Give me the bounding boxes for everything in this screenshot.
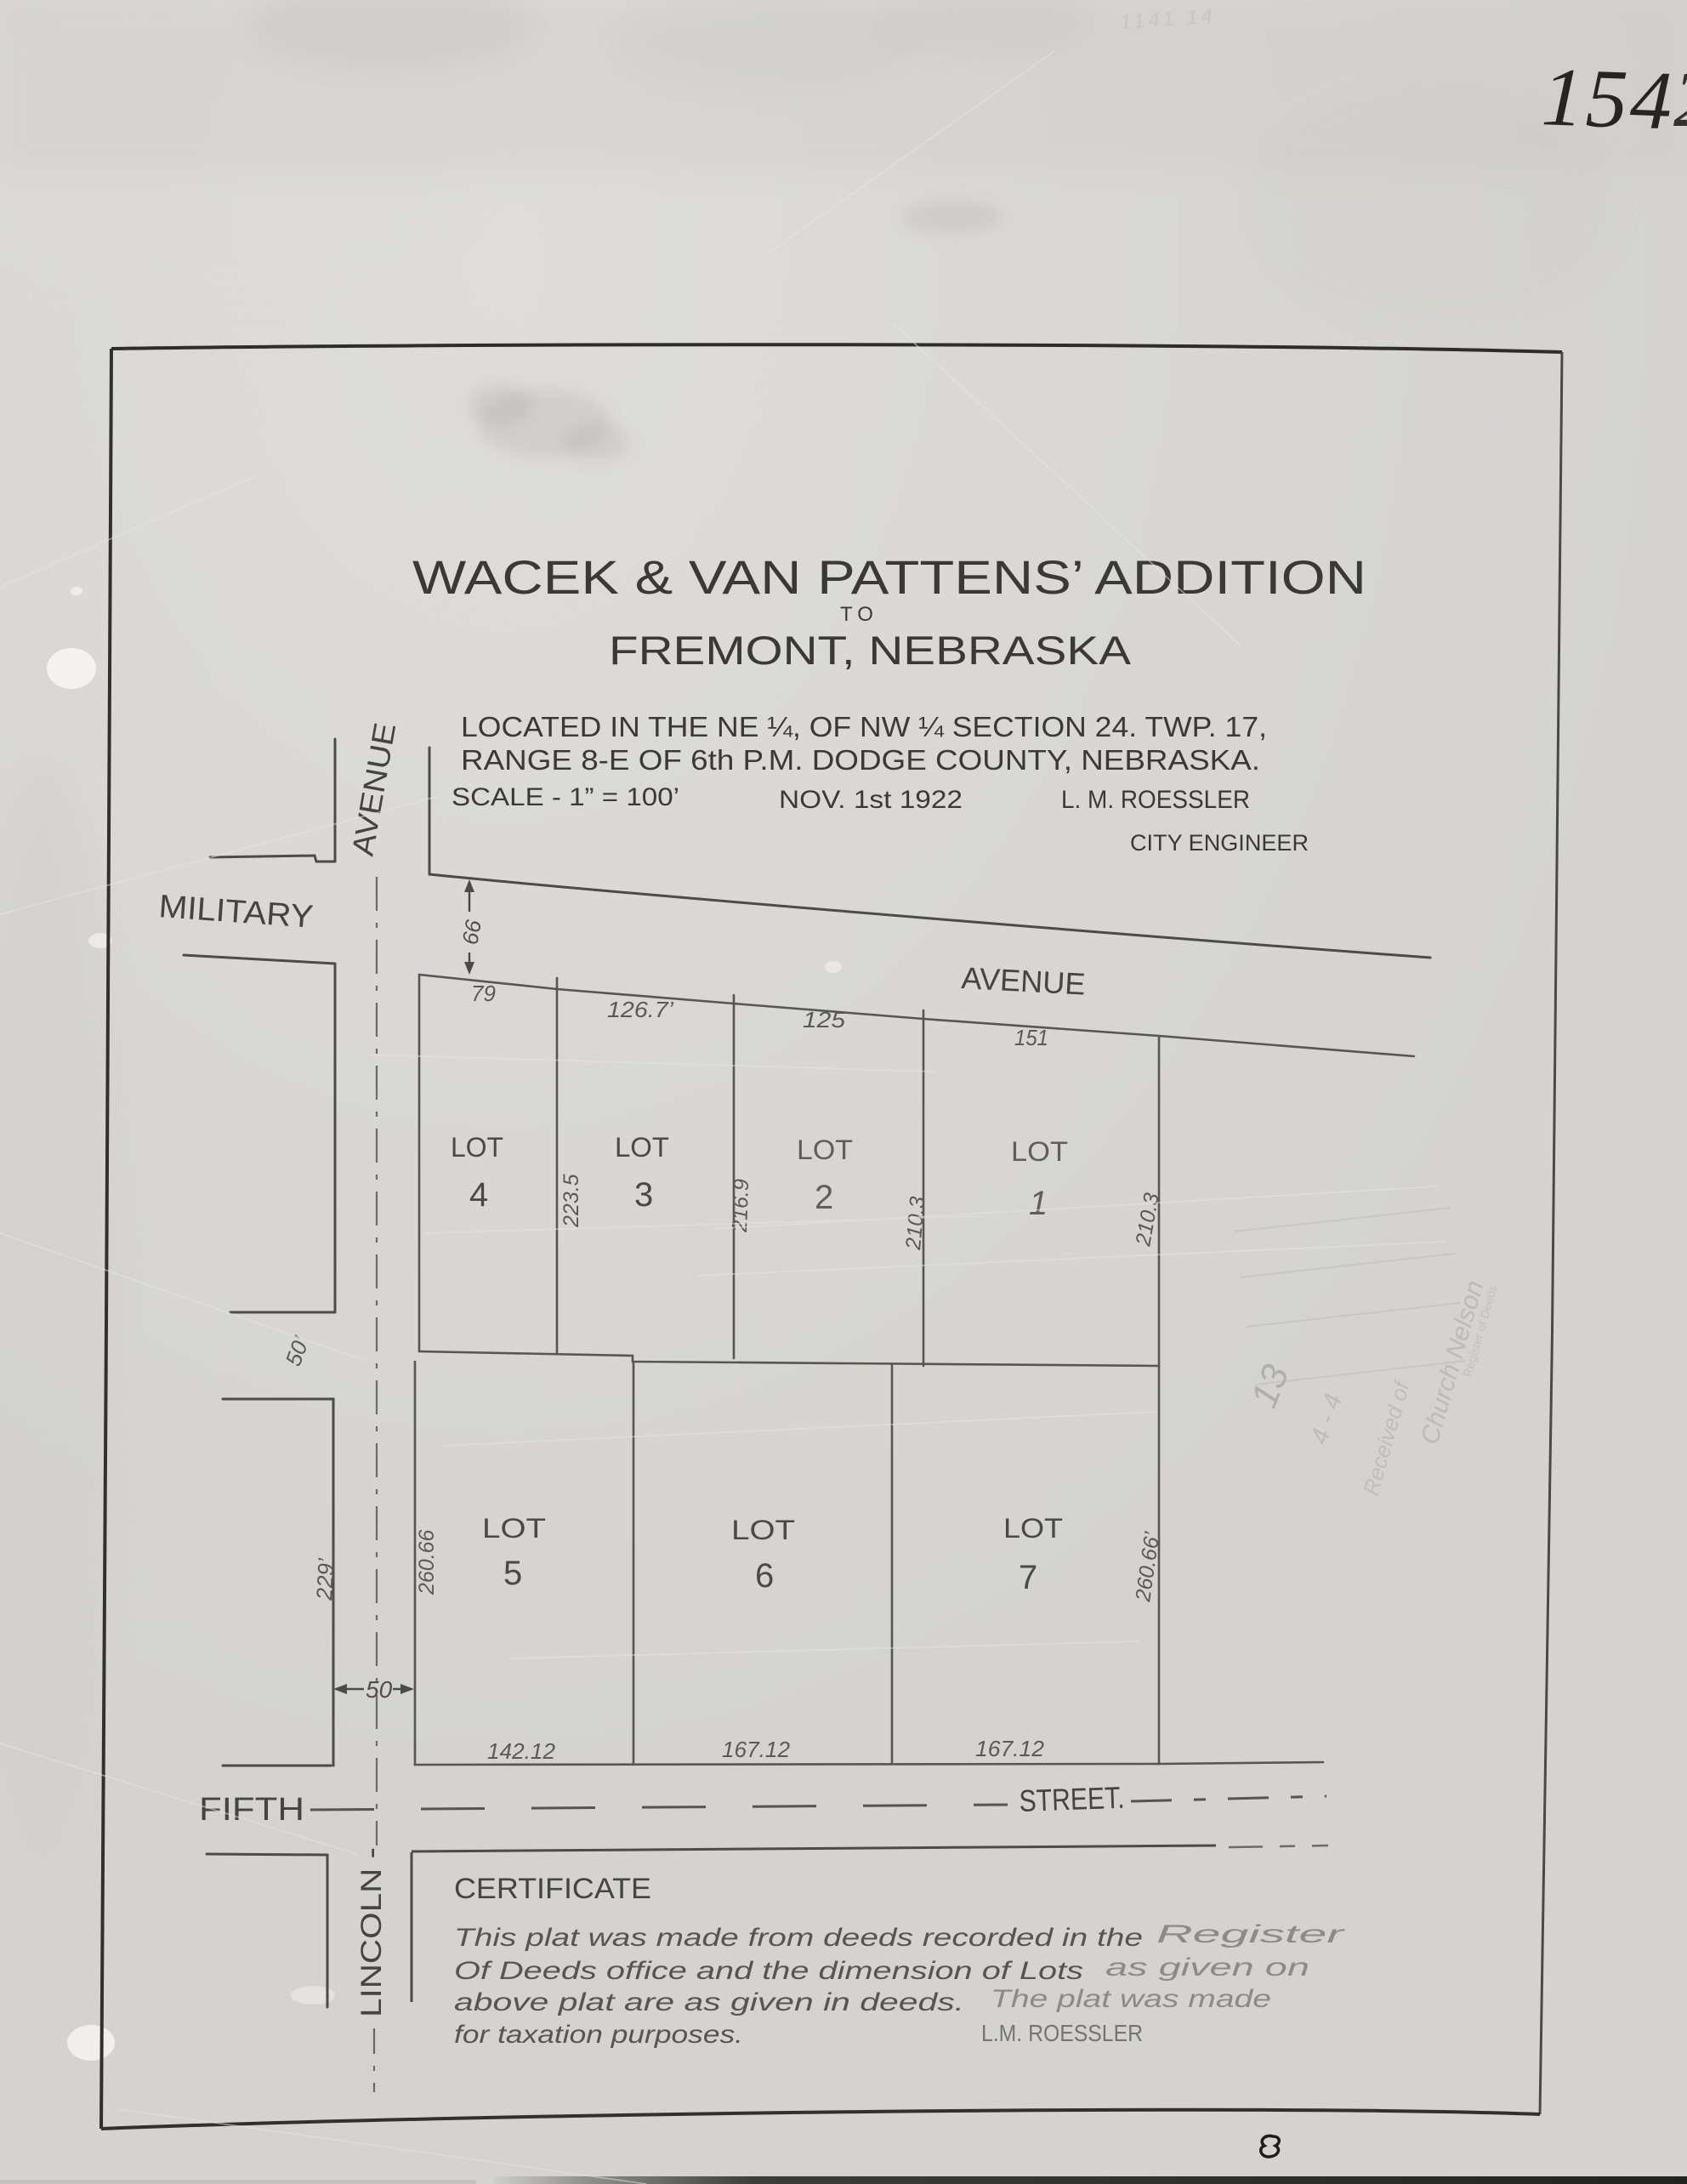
svg-text:LOT: LOT	[1003, 1513, 1063, 1544]
svg-text:LINCOLN -: LINCOLN -	[355, 1847, 388, 2017]
svg-text:210.3: 210.3	[901, 1196, 929, 1252]
svg-text:STREET.: STREET.	[1019, 1780, 1125, 1818]
svg-text:66: 66	[457, 918, 486, 947]
svg-text:LOT: LOT	[797, 1135, 853, 1165]
svg-text:LOT: LOT	[1011, 1136, 1068, 1167]
svg-text:LOT: LOT	[482, 1513, 546, 1544]
svg-text:167.12: 167.12	[975, 1736, 1045, 1761]
svg-text:5: 5	[503, 1555, 522, 1592]
svg-text:RANGE 8-E OF 6th P.M. DODGE CO: RANGE 8-E OF 6th P.M. DODGE COUNTY, NEBR…	[461, 744, 1260, 776]
svg-text:for taxation purposes.: for taxation purposes.	[454, 2021, 743, 2049]
svg-text:L. M. ROESSLER: L. M. ROESSLER	[1061, 786, 1250, 814]
svg-text:1: 1	[1029, 1185, 1048, 1222]
svg-text:FREMONT, NEBRASKA: FREMONT, NEBRASKA	[609, 628, 1132, 673]
svg-text:WACEK & VAN PATTENS’ ADDITION: WACEK & VAN PATTENS’ ADDITION	[412, 550, 1366, 604]
svg-text:LOT: LOT	[615, 1132, 669, 1163]
svg-text:NOV. 1st 1922: NOV. 1st 1922	[779, 786, 963, 814]
svg-text:Register: Register	[1156, 1920, 1345, 1948]
svg-text:167.12: 167.12	[722, 1737, 791, 1762]
svg-text:CITY ENGINEER: CITY ENGINEER	[1130, 830, 1309, 856]
svg-text:SCALE - 1” = 100’: SCALE - 1” = 100’	[452, 783, 679, 811]
svg-text:154: 154	[1540, 51, 1676, 147]
svg-text:AVENUE: AVENUE	[961, 960, 1087, 1002]
svg-text:LOCATED IN THE NE ¼, OF NW ¼: LOCATED IN THE NE ¼, OF NW ¼ SECTION 24.…	[461, 711, 1267, 742]
svg-text:LOT: LOT	[731, 1515, 795, 1545]
svg-text:142.12: 142.12	[487, 1738, 556, 1764]
svg-text:TO: TO	[840, 603, 878, 626]
svg-text:223.5: 223.5	[559, 1174, 583, 1228]
svg-text:126.7’: 126.7’	[607, 997, 674, 1022]
svg-text:229’: 229’	[311, 1556, 339, 1601]
svg-text:3: 3	[634, 1176, 653, 1214]
svg-text:The plat was made: The plat was made	[991, 1985, 1271, 2013]
svg-text:as given on: as given on	[1105, 1954, 1309, 1982]
svg-text:above plat are as given in dee: above plat are as given in deeds.	[454, 1988, 964, 2016]
svg-text:151: 151	[1014, 1025, 1048, 1050]
svg-text:260.66: 260.66	[415, 1529, 439, 1595]
svg-text:This plat was made from deeds: This plat was made from deeds recorded i…	[454, 1924, 1143, 1952]
svg-text:6: 6	[755, 1557, 774, 1595]
svg-text:2: 2	[1673, 55, 1687, 144]
svg-text:Of Deeds office and the dimens: Of Deeds office and the dimension of Lot…	[454, 1957, 1083, 1985]
svg-text:L.M. ROESSLER: L.M. ROESSLER	[981, 2020, 1143, 2046]
svg-text:79: 79	[471, 981, 496, 1006]
svg-text:7: 7	[1019, 1559, 1037, 1596]
svg-text:CERTIFICATE: CERTIFICATE	[454, 1873, 651, 1905]
svg-text:2: 2	[815, 1179, 833, 1216]
svg-text:125: 125	[803, 1007, 846, 1032]
svg-text:216.9: 216.9	[728, 1179, 753, 1234]
svg-text:4: 4	[469, 1176, 488, 1214]
svg-text:50: 50	[366, 1676, 393, 1703]
svg-text:LOT: LOT	[451, 1132, 503, 1163]
